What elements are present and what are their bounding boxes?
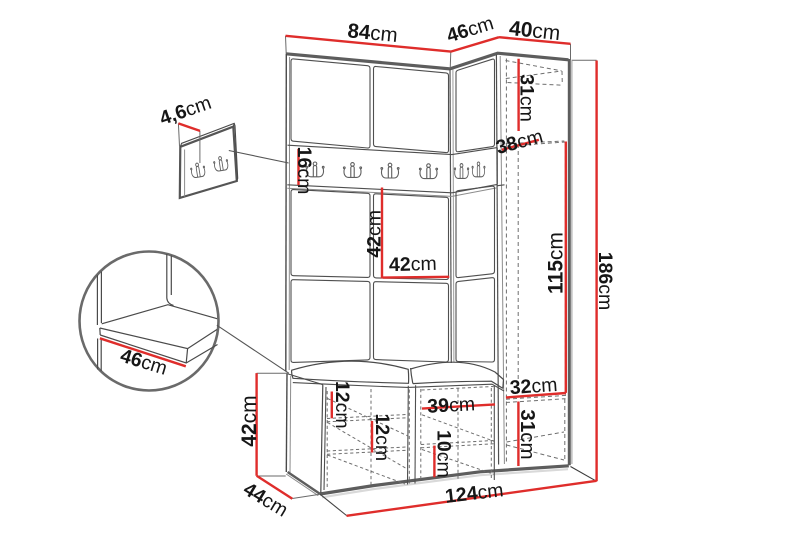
svg-text:115cm: 115cm	[545, 232, 568, 294]
svg-text:42cm: 42cm	[389, 253, 437, 276]
svg-text:31cm: 31cm	[516, 409, 539, 459]
svg-text:186cm: 186cm	[594, 252, 616, 311]
svg-text:10cm: 10cm	[433, 430, 455, 478]
svg-text:39cm: 39cm	[427, 393, 476, 417]
svg-text:12cm: 12cm	[371, 413, 393, 461]
svg-text:42cm: 42cm	[364, 210, 386, 258]
svg-text:31cm: 31cm	[516, 74, 538, 122]
svg-text:84cm: 84cm	[347, 19, 399, 47]
svg-text:12cm: 12cm	[331, 381, 353, 429]
svg-text:42cm: 42cm	[238, 395, 261, 446]
svg-text:16cm: 16cm	[293, 147, 315, 195]
svg-text:32cm: 32cm	[509, 374, 558, 399]
